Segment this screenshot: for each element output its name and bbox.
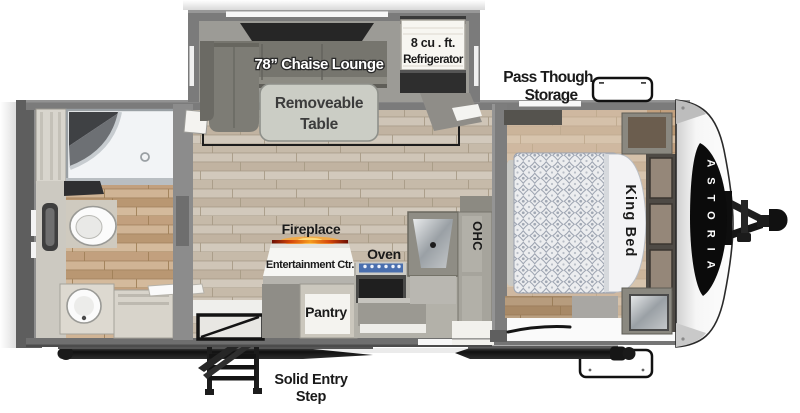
svg-text:Fireplace: Fireplace [282, 221, 341, 237]
svg-text:Pantry: Pantry [305, 304, 347, 320]
svg-text:Step: Step [296, 389, 327, 405]
svg-text:Oven: Oven [367, 246, 401, 262]
svg-text:Removeable: Removeable [275, 95, 364, 112]
svg-text:Entertainment Ctr.: Entertainment Ctr. [266, 259, 354, 271]
svg-text:Refrigerator: Refrigerator [403, 54, 464, 66]
svg-text:ASTORIA: ASTORIA [705, 159, 717, 278]
svg-text:OHC: OHC [470, 221, 485, 251]
svg-text:Storage: Storage [525, 87, 579, 104]
svg-text:Solid Entry: Solid Entry [274, 372, 347, 388]
svg-text:Pass Though: Pass Though [503, 69, 593, 86]
svg-text:King Bed: King Bed [622, 184, 638, 257]
svg-text:8 cu . ft.: 8 cu . ft. [411, 36, 455, 50]
svg-text:Table: Table [300, 116, 339, 133]
svg-text:78” Chaise Lounge: 78” Chaise Lounge [254, 56, 383, 73]
